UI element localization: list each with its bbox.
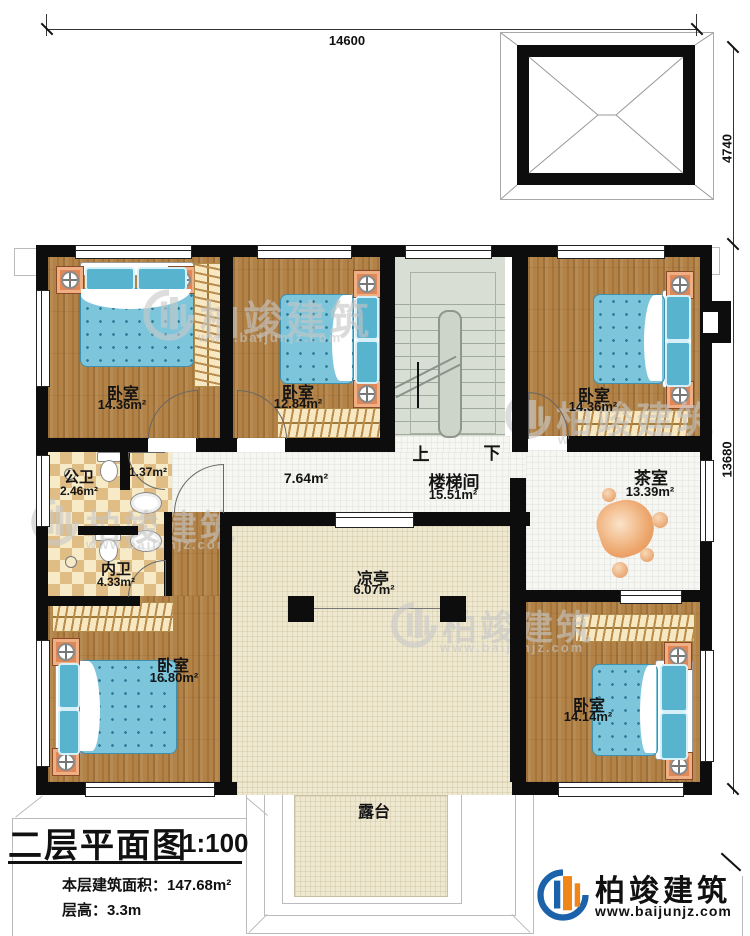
wall [412,512,530,526]
dimension-guide [696,14,697,36]
pavilion-column [288,596,314,622]
stair-direction-line [417,362,419,408]
room-area: 14.36m² [569,399,617,414]
wall [512,257,528,436]
room-area: 15.51m² [429,487,477,502]
bed-sheet-fold [644,295,662,381]
bed-pillow [58,709,80,755]
room-area: 13.39m² [626,484,674,499]
wall [36,438,148,452]
wall [78,526,138,535]
dimension-guide [46,14,47,36]
wall [680,590,712,602]
window [75,245,192,259]
window [405,245,492,259]
room-area: 14.14m² [564,709,612,724]
tea-room-pebble [612,562,628,578]
bed-pillow [665,341,691,387]
plan-scale: 1:100 [182,828,249,859]
wall [36,782,85,795]
room-area: 14.36m² [98,397,146,412]
dimension-label-right-upper: 4740 [720,127,735,171]
bed-pillow [58,663,80,709]
room-area: 16.80m² [150,670,198,685]
lamp-icon [358,385,376,403]
bed-pillow [660,664,688,712]
plan-title: 二层平面图 [8,818,188,867]
floor-pavilion-opening [237,782,512,795]
bed-pillow [355,340,379,384]
room-area: 7.64m² [284,470,328,486]
tea-room-pebble [640,548,654,562]
lamp-icon [669,647,687,665]
dimension-label-top: 14600 [317,33,377,48]
window [700,650,714,762]
window [257,245,352,259]
pavilion-column [440,596,466,622]
skylight-structure [500,32,714,200]
roof-outline [742,876,743,936]
nightstand [353,380,381,408]
floor-height-text: 层高：3.3m [62,899,141,920]
bed-pillow [85,267,135,291]
watermark-logo-icon [142,288,196,347]
window [700,460,714,542]
wall [220,512,232,782]
light-symbol [65,556,77,568]
wardrobe [52,602,174,632]
skylight-hip-lines [501,33,713,199]
lamp-icon [57,753,75,771]
window [558,782,684,797]
floor-plan-canvas: 14600 4740 13680 [0,0,750,936]
wall-flue-notch [703,312,718,333]
wall [567,436,712,452]
room-area: 6.07m² [353,582,394,597]
dimension-label-right-lower: 13680 [720,434,735,486]
lamp-icon [61,271,79,289]
title-underline [8,861,242,864]
dimension-line-right-lower [733,248,734,794]
wall [510,590,620,602]
wide-opening [335,512,414,528]
nightstand [52,638,80,666]
tea-room-pebble [652,512,668,528]
room-area: 4.33m² [97,575,135,589]
wall [285,438,395,452]
floor-tea-entry [510,452,526,478]
watermark-logo-icon [390,599,438,656]
wall [682,782,712,795]
stairs-down-label: 下 [484,439,501,464]
wall [512,782,558,795]
wall [220,257,233,438]
toilet-bowl [100,460,118,482]
window [36,640,50,767]
bed-pillow [665,295,691,341]
dimension-line-top [46,29,697,30]
nightstand [56,266,84,294]
brand-logo-icon [536,866,590,929]
stairs-up-label: 上 [413,440,430,465]
window [36,455,50,527]
window [557,245,665,259]
room-area: 12.84m² [274,396,322,411]
tea-room-pebble [602,488,616,502]
door-opening [620,590,682,604]
bed-pillow [660,712,688,760]
wall [213,782,237,795]
wall [196,438,237,452]
lamp-icon [671,276,689,294]
lamp-icon [57,643,75,661]
wall [225,512,335,526]
brand-url: www.baijunjz.com [595,903,732,919]
wall [510,478,526,592]
roof-outline [15,796,42,818]
watermark-url: www.baijunjz.com [86,537,230,552]
room-area: 1.37m² [129,465,167,479]
wall [380,257,395,438]
wall [512,436,528,452]
room-label: 露台 [358,798,390,822]
window [85,782,215,797]
wall [510,602,526,782]
room-area: 2.46m² [60,484,98,498]
floor-area-text: 本层建筑面积：147.68m² [62,874,231,895]
bed-sheet-fold [640,665,656,753]
wardrobe [277,408,381,438]
wall [48,596,140,606]
window [36,290,50,387]
